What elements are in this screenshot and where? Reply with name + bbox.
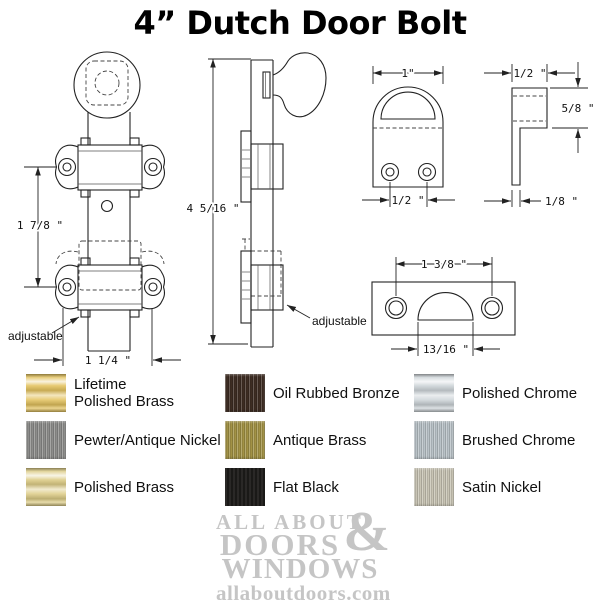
finish-swatch-lifetime-polished-brass bbox=[26, 374, 66, 412]
dim-length: 4 5/16 " bbox=[187, 202, 240, 215]
keeper-plate bbox=[373, 87, 443, 187]
knob-front-circle bbox=[74, 52, 140, 118]
dim-strike-hole-spacing: 1 3/8 " bbox=[421, 258, 467, 271]
dim-keeper-depth: 1/2 " bbox=[513, 67, 546, 80]
upper-bracket-side bbox=[241, 131, 283, 202]
keeper-side-view: 1/2 " 5/8 " 1/8 " bbox=[484, 62, 595, 208]
lower-bracket-side bbox=[241, 239, 283, 323]
finish-swatch-polished-chrome bbox=[414, 374, 454, 412]
finish-swatch-oil-rubbed-bronze bbox=[225, 374, 265, 412]
dim-keeper-thickness: 1/8 " bbox=[545, 195, 578, 208]
logo-ampersand: & bbox=[343, 509, 390, 555]
logo-website: allaboutdoors.com bbox=[216, 582, 384, 600]
lower-bracket bbox=[56, 241, 165, 317]
finish-item: Oil Rubbed Bronze bbox=[225, 374, 411, 412]
finish-label: Polished Chrome bbox=[462, 385, 577, 402]
knob-stem bbox=[263, 72, 270, 98]
finish-item: Brushed Chrome bbox=[414, 421, 596, 459]
knob-profile bbox=[273, 53, 326, 117]
strike-plate-view: 1 3/8 " 13/16 " bbox=[372, 257, 515, 356]
finish-label: Satin Nickel bbox=[462, 479, 541, 496]
finish-swatch-pewter-antique-nickel bbox=[26, 421, 66, 459]
finish-label: Polished Brass bbox=[74, 479, 174, 496]
finish-swatch-polished-brass bbox=[26, 468, 66, 506]
finish-label: Pewter/Antique Nickel bbox=[74, 432, 221, 449]
finish-label: Brushed Chrome bbox=[462, 432, 575, 449]
finish-swatch-antique-brass bbox=[225, 421, 265, 459]
dim-keeper-width: 1" bbox=[401, 67, 414, 80]
bolt-front-view: 1 7/8 " adjustable 1 1/4 " bbox=[8, 52, 181, 367]
finish-item: Satin Nickel bbox=[414, 468, 596, 506]
finish-item: Antique Brass bbox=[225, 421, 411, 459]
keeper-front-view: 1" 1/2 " bbox=[362, 66, 455, 207]
product-spec-sheet: 4” Dutch Door Bolt bbox=[0, 0, 600, 600]
dim-width: 1 1/4 " bbox=[85, 354, 131, 367]
keeper-opening bbox=[381, 92, 435, 119]
strike-opening bbox=[418, 293, 473, 320]
strike-plate bbox=[372, 282, 515, 335]
finish-column-1: Lifetime Polished Brass Pewter/Antique N… bbox=[26, 374, 222, 515]
finish-item: Lifetime Polished Brass bbox=[26, 374, 222, 412]
keeper-profile bbox=[512, 88, 547, 185]
finish-column-2: Oil Rubbed Bronze Antique Brass Flat Bla… bbox=[225, 374, 411, 515]
bolt-side-view: adjustable 4 5/16 " bbox=[187, 53, 368, 347]
knob-stem-hidden-circle bbox=[95, 71, 119, 95]
knob-base-hidden-outline bbox=[86, 61, 128, 105]
adjustable-label-side: adjustable bbox=[312, 314, 367, 328]
upper-bracket bbox=[56, 138, 165, 197]
finish-label: Lifetime Polished Brass bbox=[74, 376, 174, 410]
bar-hole bbox=[102, 201, 113, 212]
dim-strike-opening: 13/16 " bbox=[423, 343, 469, 356]
finish-item: Polished Brass bbox=[26, 468, 222, 506]
finish-column-3: Polished Chrome Brushed Chrome Satin Nic… bbox=[414, 374, 596, 515]
dim-bracket-spacing: 1 7/8 " bbox=[17, 219, 63, 232]
dim-keeper-height: 5/8 " bbox=[561, 102, 594, 115]
footer-logo: ALL ABOUT DOORS & WINDOWS allaboutdoors.… bbox=[0, 512, 600, 600]
finish-label: Oil Rubbed Bronze bbox=[273, 385, 400, 402]
dim-keeper-hole-spacing: 1/2 " bbox=[391, 194, 424, 207]
finish-swatch-brushed-chrome bbox=[414, 421, 454, 459]
finish-swatch-satin-nickel bbox=[414, 468, 454, 506]
finish-label: Antique Brass bbox=[273, 432, 366, 449]
finish-label: Flat Black bbox=[273, 479, 339, 496]
finish-item: Pewter/Antique Nickel bbox=[26, 421, 222, 459]
finish-item: Polished Chrome bbox=[414, 374, 596, 412]
finish-swatch-flat-black bbox=[225, 468, 265, 506]
